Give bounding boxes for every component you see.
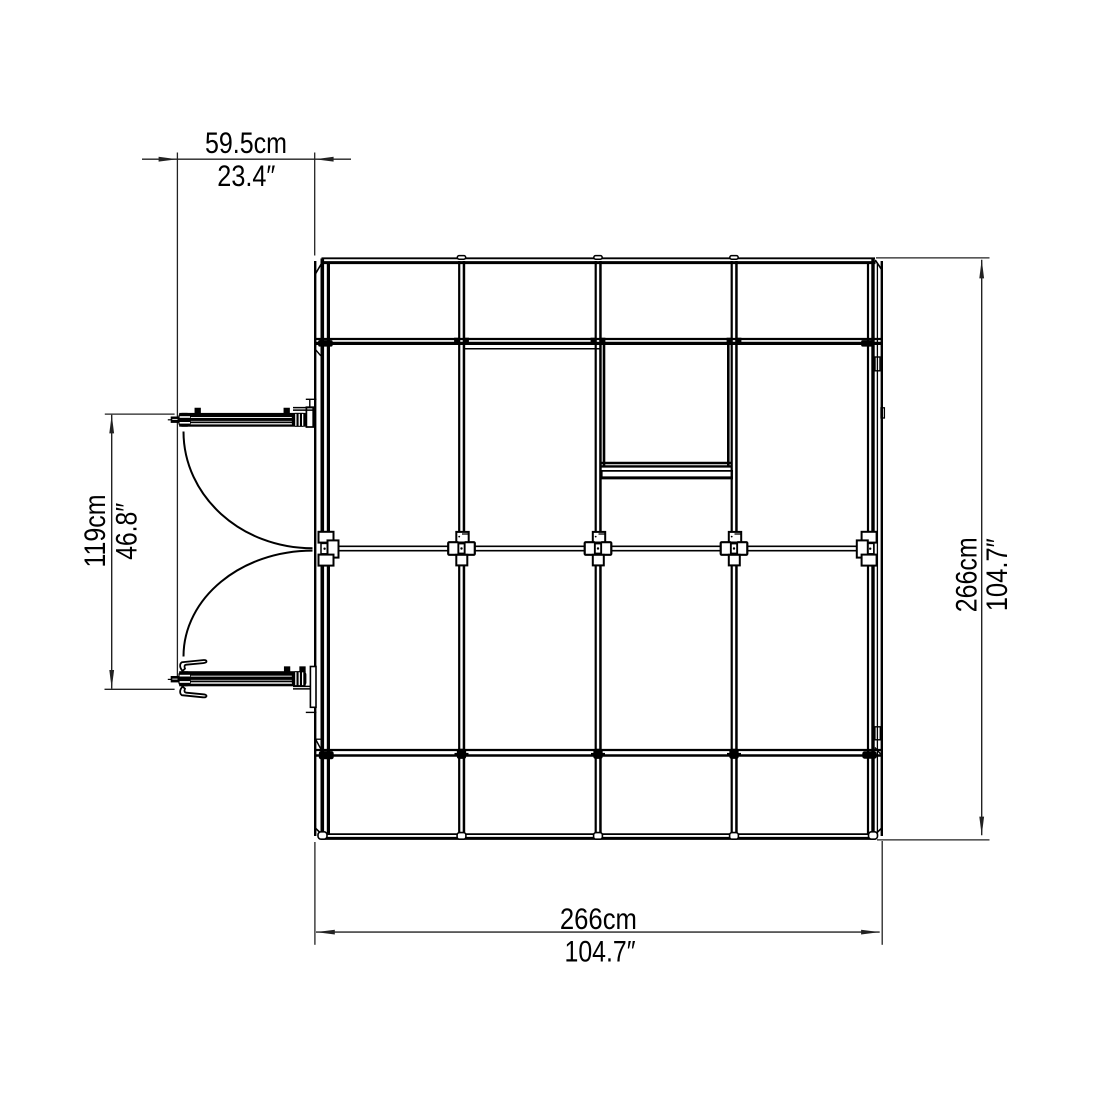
svg-text:266cm: 266cm	[560, 903, 637, 936]
svg-text:119cm: 119cm	[79, 495, 112, 568]
svg-text:59.5cm: 59.5cm	[205, 127, 287, 160]
svg-text:46.8″: 46.8″	[111, 503, 144, 560]
svg-text:104.7″: 104.7″	[565, 936, 636, 969]
svg-text:104.7″: 104.7″	[981, 538, 1014, 611]
svg-text:266cm: 266cm	[951, 537, 984, 612]
svg-text:23.4″: 23.4″	[217, 160, 275, 193]
